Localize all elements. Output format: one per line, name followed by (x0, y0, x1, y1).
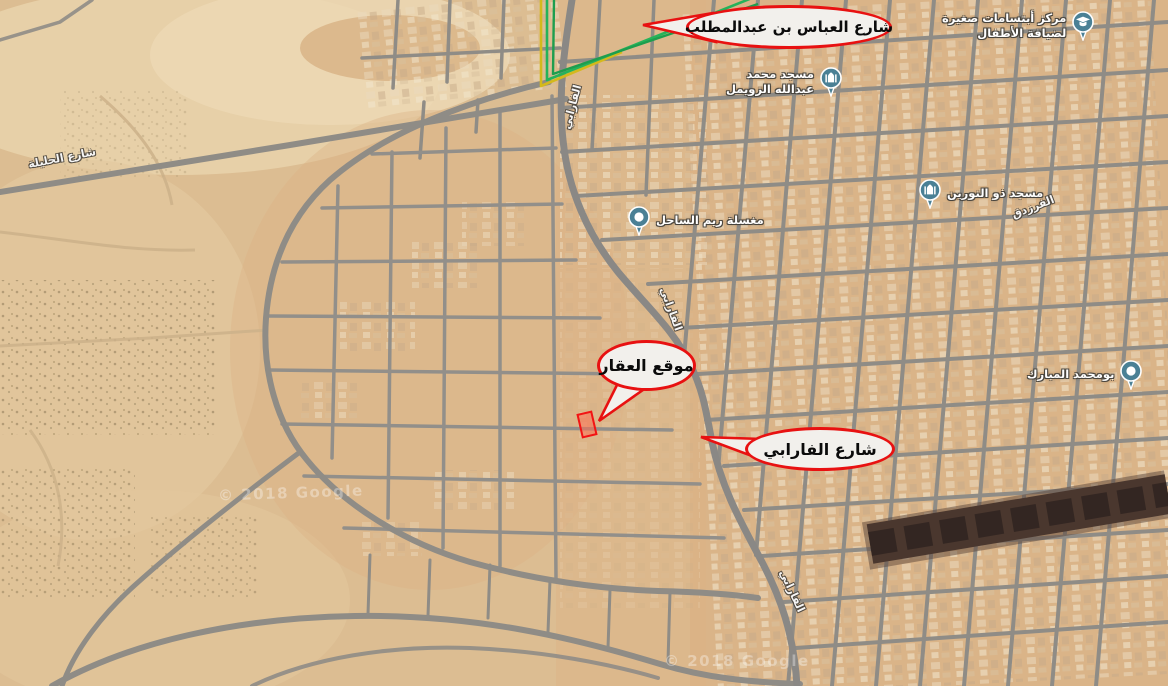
callout-street-abbas: شارع العباس بن عبدالمطلب (686, 5, 892, 49)
callout-text: موقع العقار (599, 356, 693, 375)
place-icon (626, 205, 652, 236)
poi-label-line: عبدالله الزويمل (726, 82, 814, 97)
map-base-imagery (0, 0, 1168, 686)
callout-text: شارع الفارابي (763, 440, 876, 459)
poi-label-line: مسجد ذو النورين (947, 186, 1043, 201)
mosque-icon (917, 178, 943, 209)
poi-laundry-reem[interactable]: مغسلة ريم الساحل (626, 205, 764, 236)
mosque-icon (818, 66, 844, 97)
google-watermark: © 2018 Google (664, 652, 810, 670)
poi-smiles-children-center[interactable]: مركز أبتسامات صغيرة لضيافة الأطفال (942, 10, 1096, 41)
callout-property-location: موقع العقار (597, 340, 696, 391)
poi-label-line: بومحمد المبارك (1027, 367, 1114, 382)
poi-mosque-nurain[interactable]: مسجد ذو النورين (917, 178, 1043, 209)
callout-street-farabi: شارع الفارابي (745, 427, 895, 471)
callout-text: شارع العباس بن عبدالمطلب (685, 18, 893, 36)
place-icon (1118, 359, 1144, 390)
poi-label-line: مغسلة ريم الساحل (656, 213, 764, 228)
poi-label-line: مسجد محمد (726, 67, 814, 82)
poi-label-line: لضيافة الأطفال (942, 26, 1066, 41)
satellite-map: © 2018 Google © 2018 Google الفارابي الف… (0, 0, 1168, 686)
education-icon (1070, 10, 1096, 41)
poi-label-line: مركز أبتسامات صغيرة (942, 11, 1066, 26)
poi-bumohammed-mubarak[interactable]: بومحمد المبارك (1027, 359, 1144, 390)
poi-mosque-zuwaimel[interactable]: مسجد محمد عبدالله الزويمل (726, 66, 844, 97)
